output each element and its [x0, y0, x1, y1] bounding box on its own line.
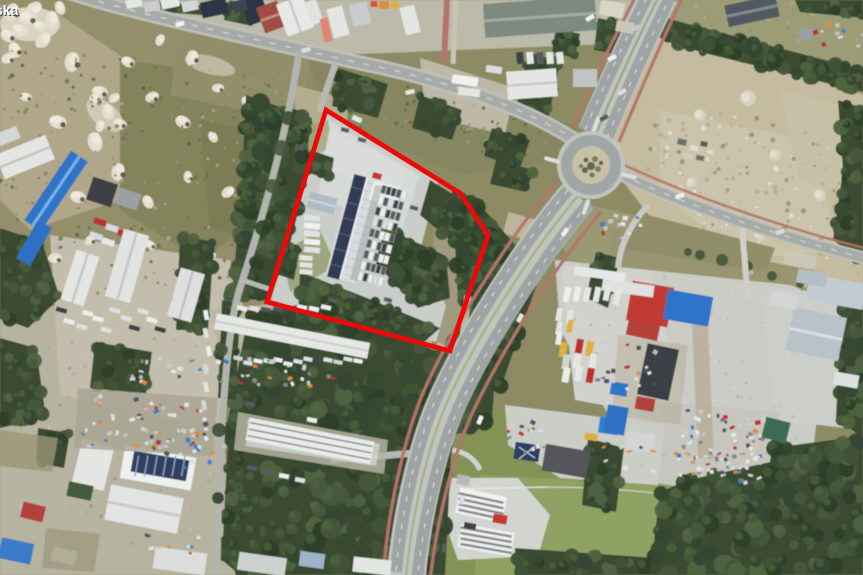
svg-text:ska: ska [0, 2, 19, 18]
